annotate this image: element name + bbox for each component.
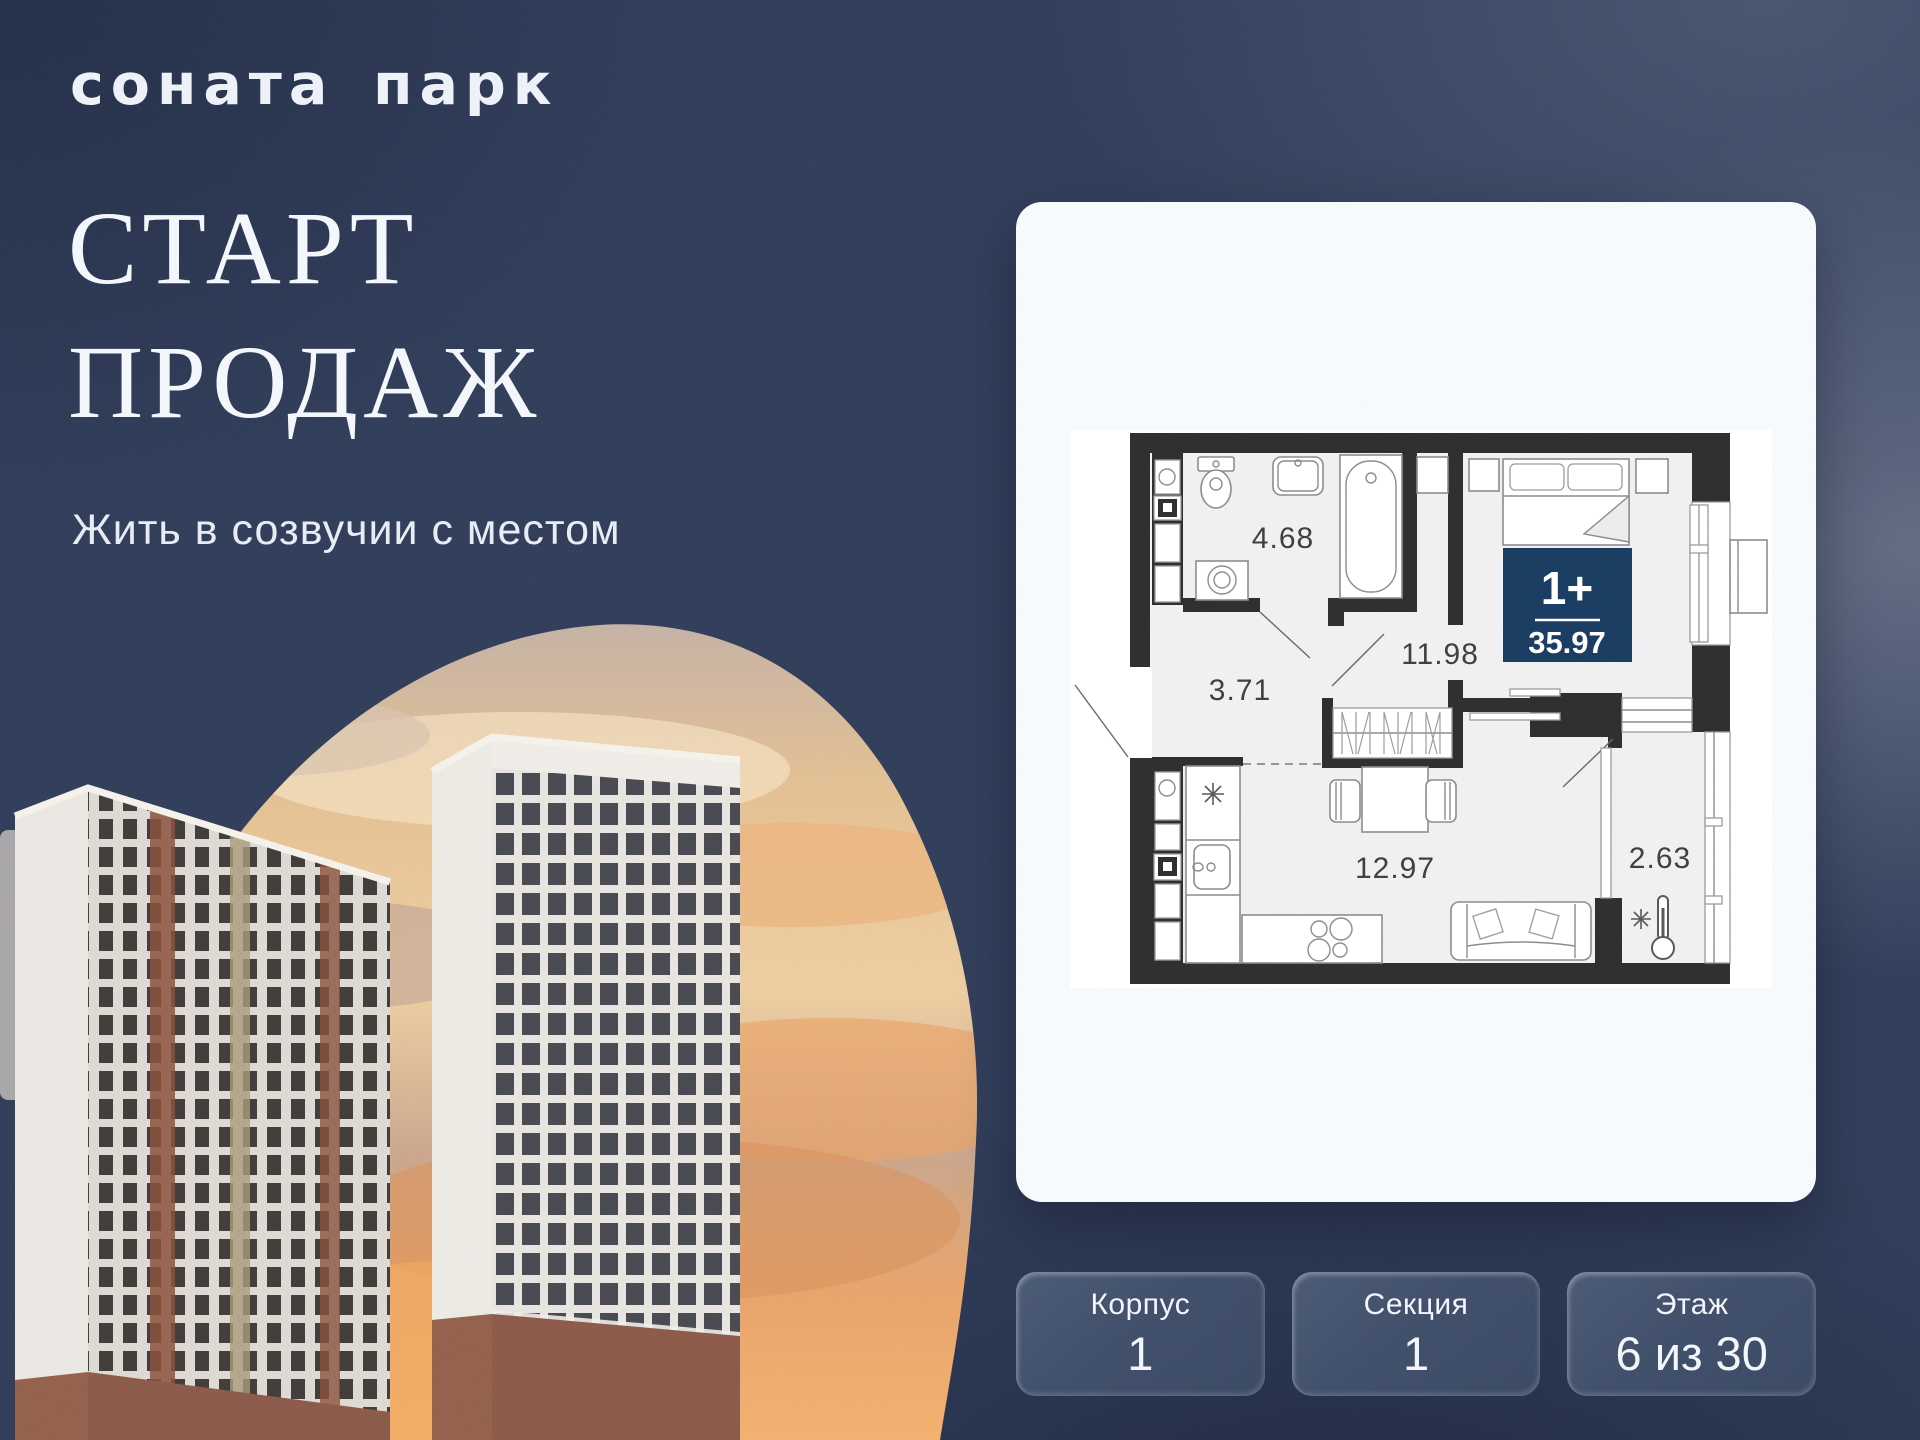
floorplan-card: 1+ 35.97 (1016, 202, 1816, 1202)
nightstand-right (1636, 459, 1668, 493)
info-box-floor: Этаж 6 из 30 (1567, 1272, 1816, 1396)
info-box-building: Корпус 1 (1016, 1272, 1265, 1396)
sales-start-title: СТАРТ ПРОДАЖ (68, 182, 541, 450)
kitchen-counter (1242, 915, 1382, 963)
room-area-kitchen-living: 12.97 (1355, 852, 1435, 885)
apartment-type-badge: 1+ 35.97 (1503, 548, 1632, 662)
sliding-door-panel (1470, 713, 1560, 720)
kitchen-sink-icon (1194, 845, 1230, 889)
entry-door-opening (1126, 667, 1152, 758)
poster-canvas: соната парк СТАРТ ПРОДАЖ Жить в созвучии… (0, 0, 1920, 1440)
total-area: 35.97 (1528, 625, 1606, 660)
info-label: Этаж (1655, 1288, 1729, 1322)
closet (1417, 457, 1448, 493)
building-right (432, 737, 740, 1440)
tagline: Жить в созвучии с местом (72, 506, 621, 555)
toilet-icon (1198, 457, 1234, 471)
utility-shaft-bottom (1154, 772, 1181, 960)
info-value: 1 (1403, 1326, 1429, 1381)
info-value: 1 (1127, 1326, 1153, 1381)
wardrobe (1333, 708, 1452, 758)
title-line-2: ПРОДАЖ (68, 316, 541, 450)
buildings-photo (0, 620, 990, 1440)
rooms-count: 1+ (1541, 562, 1593, 614)
sliding-door-panel (1510, 689, 1560, 696)
apartment-details-row: Корпус 1 Секция 1 Этаж 6 из 30 (1016, 1272, 1816, 1398)
utility-shaft-top (1154, 460, 1181, 602)
window-bay (1730, 540, 1767, 613)
info-value: 6 из 30 (1616, 1326, 1768, 1381)
fridge-mark-icon (1202, 783, 1224, 805)
balcony-glazing (1705, 732, 1730, 963)
floorplan: 1+ 35.97 (1070, 430, 1772, 988)
room-area-hallway: 3.71 (1209, 674, 1271, 707)
room-area-bathroom: 4.68 (1252, 522, 1314, 555)
info-box-section: Секция 1 (1292, 1272, 1541, 1396)
room-area-balcony: 2.63 (1629, 842, 1691, 875)
room-area-bedroom: 11.98 (1401, 638, 1479, 671)
info-label: Секция (1364, 1288, 1469, 1322)
title-line-1: СТАРТ (68, 182, 541, 316)
brand-logo: соната парк (70, 52, 558, 118)
balcony-window (1622, 698, 1692, 732)
bathtub-icon (1340, 455, 1402, 598)
sofa-icon (1451, 902, 1591, 960)
snowflake-icon (1631, 909, 1651, 929)
nightstand-left (1469, 459, 1499, 491)
balcony-partition (1601, 748, 1611, 898)
info-label: Корпус (1090, 1288, 1190, 1322)
building-left (15, 788, 390, 1440)
